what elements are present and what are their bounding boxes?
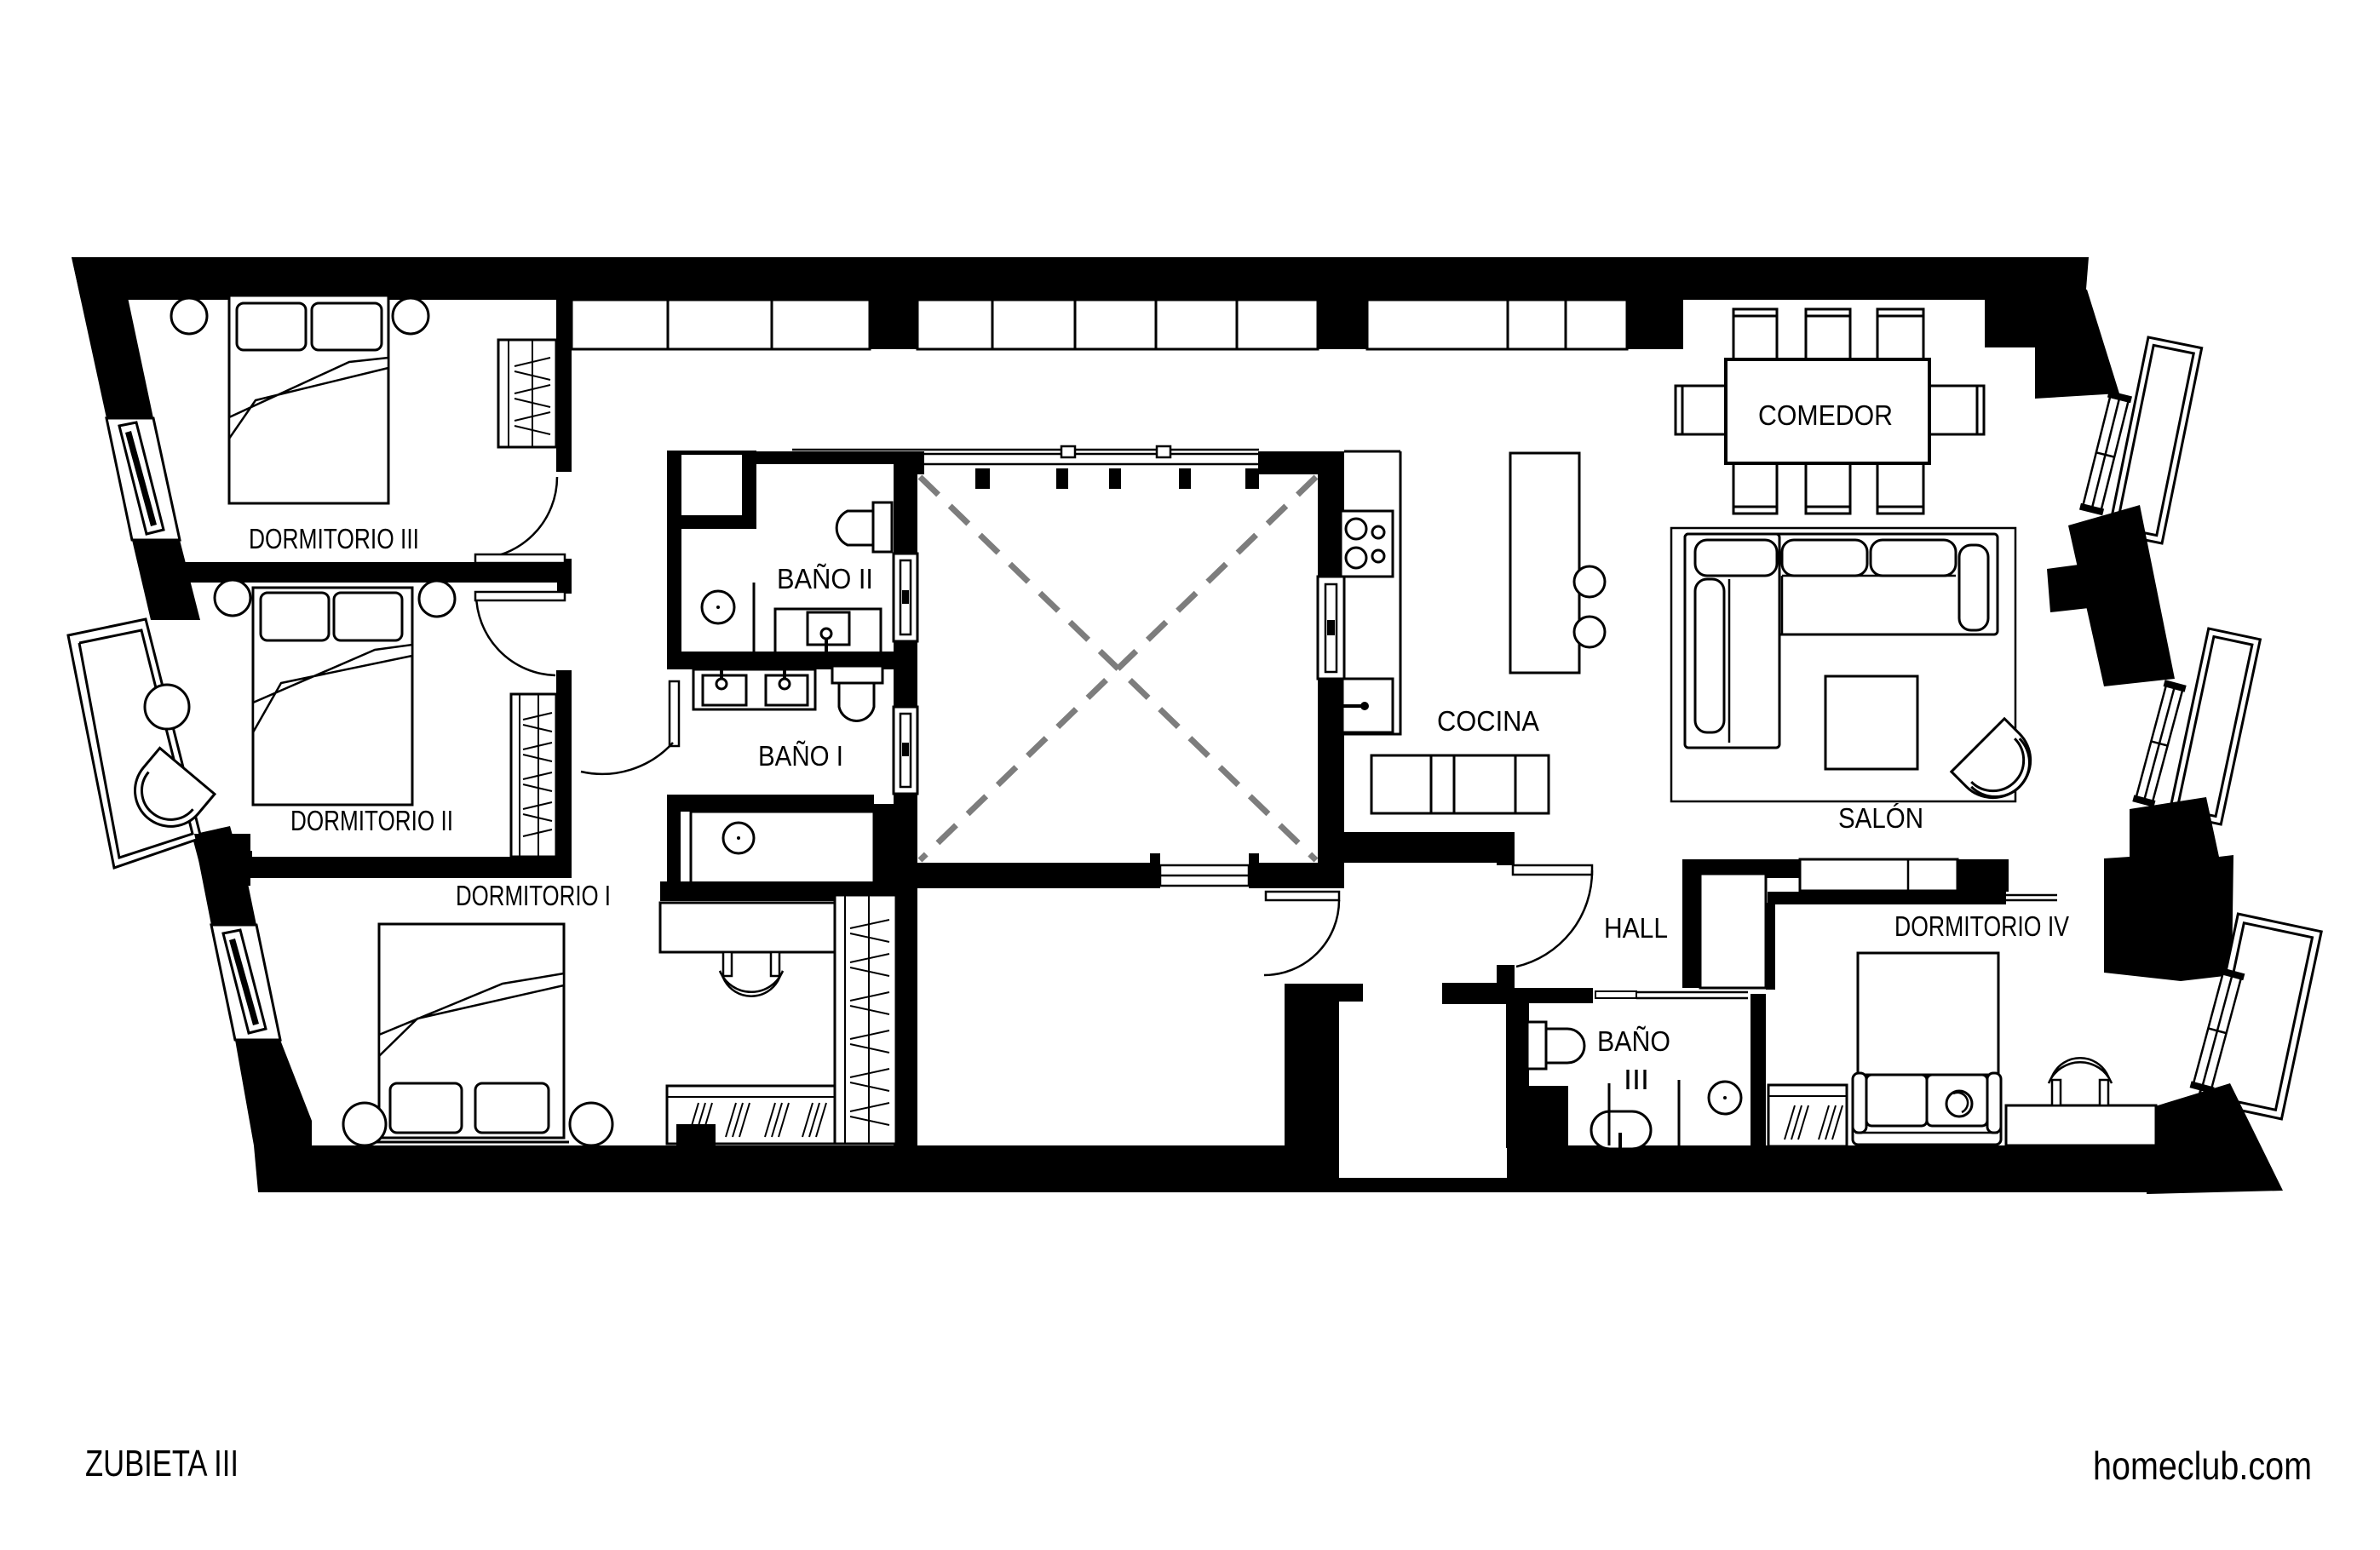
svg-text:BAÑO I: BAÑO I	[758, 740, 843, 772]
svg-text:ZUBIETA III: ZUBIETA III	[85, 1443, 239, 1484]
svg-text:COMEDOR: COMEDOR	[1758, 399, 1893, 431]
svg-text:HALL: HALL	[1604, 912, 1668, 944]
svg-text:III: III	[1624, 1064, 1649, 1095]
svg-text:COCINA: COCINA	[1437, 705, 1539, 737]
svg-text:homeclub.com: homeclub.com	[2093, 1444, 2312, 1488]
svg-text:BAÑO: BAÑO	[1597, 1025, 1670, 1057]
svg-text:BAÑO II: BAÑO II	[777, 563, 873, 594]
svg-text:DORMITORIO II: DORMITORIO II	[290, 805, 453, 836]
svg-text:SALÓN: SALÓN	[1838, 802, 1923, 834]
svg-text:DORMITORIO I: DORMITORIO I	[456, 880, 611, 911]
svg-text:DORMITORIO III: DORMITORIO III	[249, 523, 419, 554]
svg-text:DORMITORIO IV: DORMITORIO IV	[1894, 910, 2069, 942]
